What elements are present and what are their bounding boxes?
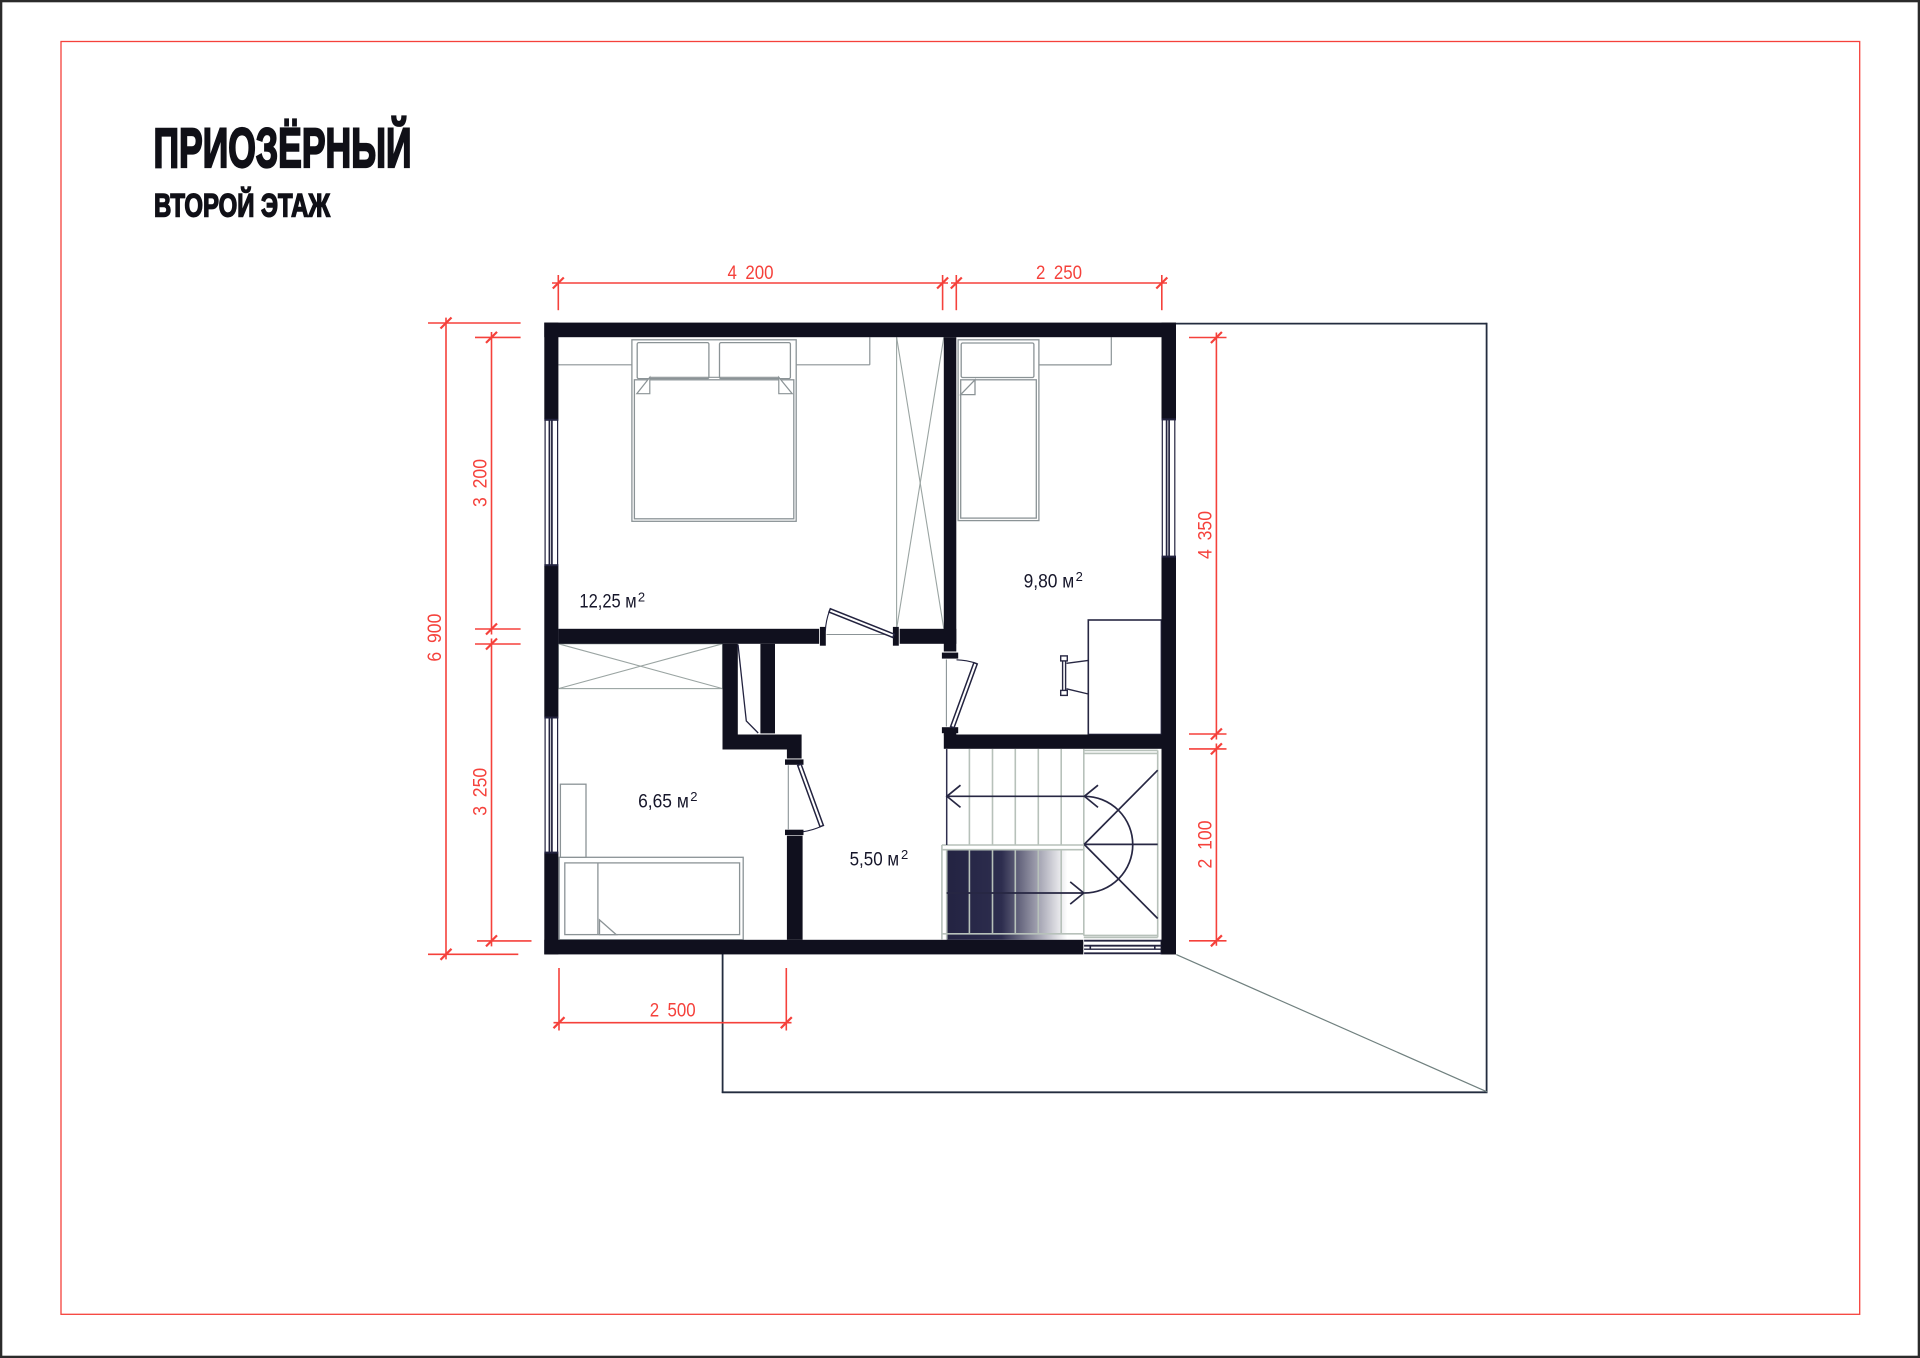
svg-text:3 250: 3 250 [471,768,492,816]
svg-text:12,25 м: 12,25 м [579,591,636,612]
svg-text:9,80 м: 9,80 м [1024,571,1075,592]
svg-text:6 900: 6 900 [425,614,446,662]
svg-text:ВТОРОЙ ЭТАЖ: ВТОРОЙ ЭТАЖ [154,186,330,224]
svg-text:6,65 м: 6,65 м [638,791,689,812]
svg-text:5,50 м: 5,50 м [850,850,900,871]
svg-text:2: 2 [690,789,697,804]
svg-text:ПРИОЗЁРНЫЙ: ПРИОЗЁРНЫЙ [154,116,412,179]
svg-text:4 350: 4 350 [1195,511,1216,559]
svg-text:4 200: 4 200 [728,263,774,284]
svg-text:2 500: 2 500 [650,1001,696,1022]
svg-text:2: 2 [901,847,908,862]
svg-text:3 200: 3 200 [471,459,492,507]
svg-text:2: 2 [638,589,645,604]
svg-text:2: 2 [1076,569,1083,584]
svg-text:2 100: 2 100 [1195,821,1216,869]
svg-text:2 250: 2 250 [1036,263,1082,284]
